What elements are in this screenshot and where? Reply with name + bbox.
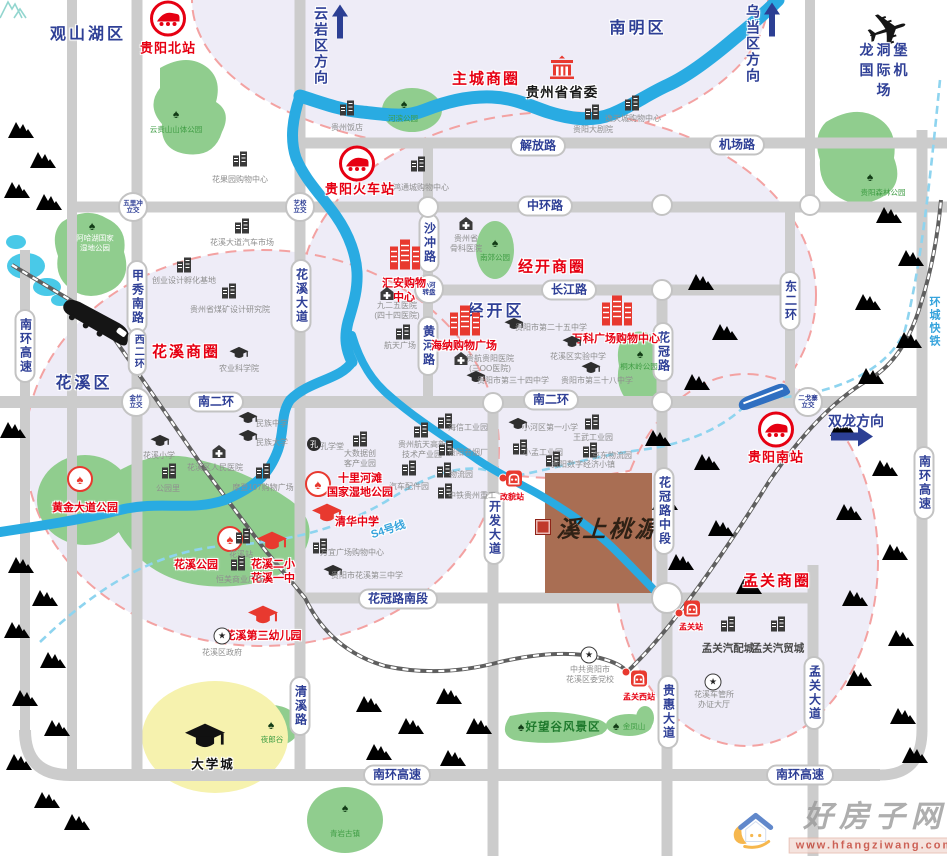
building-label: 孔学堂 — [320, 442, 344, 452]
school-icon — [239, 429, 258, 447]
road-label: 中环路 — [517, 196, 573, 217]
building-icon — [177, 257, 192, 278]
building-label: 花果园购物中心 — [212, 175, 268, 185]
property-marker: 溪上桃源 — [535, 510, 661, 544]
metro-station-label: 孟关站 — [679, 622, 703, 633]
building-icon — [236, 528, 251, 549]
building-label: 贵阳大剧院 — [573, 125, 613, 135]
business-circle-label: 孟关商圈 — [743, 570, 811, 591]
road-junction — [651, 194, 673, 216]
building-icon — [256, 463, 271, 484]
building-label: 京东物流园 — [592, 451, 632, 461]
watermark-house-icon — [729, 788, 781, 856]
school-icon — [239, 411, 258, 429]
school-label: 贵阳市第二十五中学 — [515, 323, 587, 333]
building-icon — [585, 414, 600, 435]
metro-station-label: 孟关西站 — [623, 692, 655, 703]
building-icon — [162, 463, 177, 484]
building-icon — [340, 100, 355, 121]
hospital-label: 九二五医院 (四十四医院) — [374, 301, 419, 321]
building-label: 汽车配件园 — [389, 482, 429, 492]
road-junction: 金竹 立交 — [121, 387, 151, 417]
road-junction: 二戈寨 立交 — [793, 387, 823, 417]
road-label: 长江路 — [541, 280, 597, 301]
park-label: 好望谷风景区 — [526, 721, 601, 736]
building-icon — [233, 151, 248, 172]
school-label: 花溪小学 — [143, 451, 175, 461]
site-watermark: 好房子网 www.hfangziwang.com — [729, 788, 947, 856]
road-label: 孟关大道 — [804, 656, 825, 730]
road-label: 机场路 — [709, 135, 765, 156]
building-label: 孟关汽贸城 — [752, 642, 805, 655]
metro-station-label: 改貌站 — [500, 492, 524, 503]
university-town-icon — [185, 722, 225, 755]
district-label: 花溪区 — [55, 369, 112, 393]
road-label: 南环高速 — [15, 309, 36, 383]
school-icon — [563, 335, 582, 353]
arrow-up-icon — [332, 5, 348, 44]
government-office-star-icon: ★ — [581, 647, 598, 664]
park-tree-icon: ♠ — [268, 719, 274, 731]
road-junction — [799, 194, 821, 216]
road-label: 解放路 — [510, 136, 566, 157]
building-icon — [222, 283, 237, 304]
building-label: 花溪站 — [229, 550, 253, 560]
metro-station-icon — [631, 670, 648, 692]
building-label: 大数据创 客产业园 — [344, 449, 376, 469]
featured-school-icon — [248, 604, 278, 630]
real-estate-location-map: 溪上桃源 ✈ (function(){ var D=JSON.parse(doc… — [0, 0, 947, 856]
featured-school-icon — [257, 530, 287, 556]
school-icon — [230, 346, 249, 364]
railway-station-label: 贵阳南站 — [748, 447, 804, 466]
road-label: 甲秀南路 — [127, 260, 148, 334]
school-label: 农业科学院 — [219, 364, 259, 374]
government-office-label: 花溪车管所 办证大厅 — [694, 690, 734, 710]
building-label: 中铁贵州重工 — [448, 491, 496, 501]
park-label: 桐木岭公园 — [620, 362, 658, 372]
hospital-icon — [212, 444, 227, 464]
building-label: 花溪大道汽车市场 — [210, 238, 274, 248]
road-junction — [651, 279, 673, 301]
school-icon — [151, 434, 170, 452]
park-tree-icon: ♠ — [173, 108, 179, 120]
building-icon — [625, 95, 640, 116]
business-circle-label: 花溪商圈 — [152, 341, 220, 362]
park-tree-icon: ♠ — [518, 721, 524, 733]
park-tree-icon: ♠ — [867, 171, 873, 183]
park-tree-icon: ♠ — [492, 237, 498, 249]
shopping-mall-icon — [450, 304, 480, 341]
park-tree-icon: ♠ — [342, 802, 348, 814]
metro-station-icon — [506, 470, 523, 492]
school-label: 贵阳市第三十八中学 — [561, 376, 633, 386]
university-town-label: 大学城 — [191, 754, 235, 773]
park-label: 贵阳森林公园 — [861, 188, 906, 198]
shopping-mall-icon — [390, 238, 420, 275]
hospital-label: 花溪区人民医院 — [187, 463, 243, 473]
landmark-circle-icon: 孔 — [307, 437, 321, 451]
school-label: 民族中学 — [256, 419, 288, 429]
road-label: 南环高速 — [914, 446, 935, 520]
road-junction — [482, 392, 504, 414]
road-label: 南环高速 — [766, 765, 834, 786]
road-label: 东二环 — [780, 271, 801, 331]
park-label: 南郊公园 — [480, 253, 510, 263]
building-icon — [235, 218, 250, 239]
park-tree-icon: ♠ — [89, 220, 95, 232]
road-label: 清溪路 — [290, 676, 311, 736]
road-label: 南二环 — [188, 392, 244, 413]
business-circle-label: 经开商圈 — [518, 256, 586, 277]
road-label: 南二环 — [523, 390, 579, 411]
railway-station-label: 贵阳火车站 — [325, 179, 395, 198]
station-dot-icon — [675, 609, 684, 618]
building-label: 创业设计孵化基地 — [152, 276, 216, 286]
road-label: 西二环 — [128, 328, 147, 376]
road-label: 花冠路南段 — [358, 589, 438, 610]
metro-station-icon — [684, 600, 701, 622]
government-office-star-icon: ★ — [214, 628, 231, 645]
station-dot-icon — [622, 668, 631, 677]
road-label: 沙冲路 — [419, 213, 440, 273]
school-label: 民族大学 — [256, 438, 288, 448]
building-label: 逸天城购物中心 — [605, 114, 661, 124]
park-label: 青岩古镇 — [330, 829, 360, 839]
park-tree-icon: ♠ — [637, 348, 643, 360]
building-label: 万宜广场购物中心 — [320, 548, 384, 558]
featured-park-label: 十里河滩 国家湿地公园 — [327, 472, 393, 501]
park-label: 云贵山山体公园 — [150, 125, 203, 135]
building-label: 恒美商业广场 — [216, 575, 264, 585]
park-label: 河滨公园 — [388, 114, 418, 124]
building-label: 海信工业园 — [448, 423, 488, 433]
business-circle-label: 主城商圈 — [452, 68, 520, 89]
featured-school-label: 花溪第三幼儿园 — [225, 629, 302, 643]
arrow-right-icon — [831, 427, 873, 452]
road-junction — [417, 196, 439, 218]
park-label: 夜郎谷 — [261, 735, 284, 745]
government-label: 贵州省省委 — [526, 81, 599, 101]
building-icon — [585, 104, 600, 125]
airport-label: 龙洞堡国际机场 — [854, 40, 916, 100]
building-icon — [771, 616, 786, 637]
featured-school-label: 清华中学 — [335, 515, 379, 529]
district-label: 观山湖区 — [50, 20, 126, 44]
road-label: 花溪大道 — [291, 259, 312, 333]
direction-label: 云岩区方向 — [311, 6, 331, 86]
road-junction — [651, 391, 673, 413]
property-seal-icon — [535, 519, 551, 535]
road-label: 花冠路中段 — [654, 467, 675, 555]
watermark-url: www.hfangziwang.com — [789, 837, 947, 853]
park-label: 金凤山 — [623, 722, 646, 732]
government-office-star-icon: ★ — [705, 674, 722, 691]
hospital-label: 贵州省 骨科医院 — [450, 234, 482, 254]
building-label: 鸿通城购物中心 — [393, 183, 449, 193]
featured-park-label: 黄金大道公园 — [52, 501, 118, 515]
building-label: 贵州省煤矿设计研究院 — [190, 305, 270, 315]
building-icon — [411, 156, 426, 177]
building-label: 摩登107购物广场 — [232, 483, 293, 493]
building-label: 物流园 — [449, 470, 473, 480]
school-label: 贵阳市第三十四中学 — [477, 376, 549, 386]
shopping-mall-icon — [602, 294, 632, 331]
building-label: 孟关汽配城 — [702, 642, 755, 655]
school-label: 贵阳市花溪第三中学 — [331, 571, 403, 581]
property-name: 溪上桃源 — [556, 510, 662, 544]
district-label: 南明区 — [609, 14, 666, 38]
railway-station-label: 贵阳北站 — [140, 38, 196, 57]
rail-line-label: 环城快铁 — [926, 296, 942, 348]
government-office-label: 花溪区政府 — [202, 648, 242, 658]
direction-label: 乌当区方向 — [743, 4, 763, 84]
school-label: 小河区第一小学 — [522, 423, 578, 433]
featured-park-icon: ♠ — [67, 466, 93, 492]
building-icon — [721, 616, 736, 637]
hospital-icon — [459, 216, 474, 236]
park-tree-icon: ♠ — [613, 720, 619, 732]
road-junction: 艺校 立交 — [285, 192, 315, 222]
road-label: 南环高速 — [363, 765, 431, 786]
building-label: 公园里 — [156, 484, 180, 494]
park-label: 阿哈湖国家 湿地公园 — [76, 233, 114, 253]
road-junction: 五里冲 立交 — [118, 192, 148, 222]
building-label: 贵州饭店 — [331, 123, 363, 133]
railway-station-icon — [149, 0, 187, 43]
government-office-label: 中共贵阳市 花溪区委党校 — [566, 665, 614, 685]
road-label: 贵惠大道 — [658, 675, 679, 749]
hospital-label: 贵航贵阳医院 (三OO医院) — [466, 354, 514, 374]
park-tree-icon: ♠ — [401, 98, 407, 110]
building-label: 航天广场 — [384, 341, 416, 351]
building-label: 贵阳卷烟厂 — [448, 448, 488, 458]
building-icon — [402, 460, 417, 481]
arrow-up-icon — [764, 3, 780, 42]
featured-park-label: 花溪公园 — [174, 558, 218, 572]
shopping-mall-label: 万科广场购物中心 — [572, 332, 660, 346]
watermark-site-name: 好房子网 — [803, 791, 947, 835]
